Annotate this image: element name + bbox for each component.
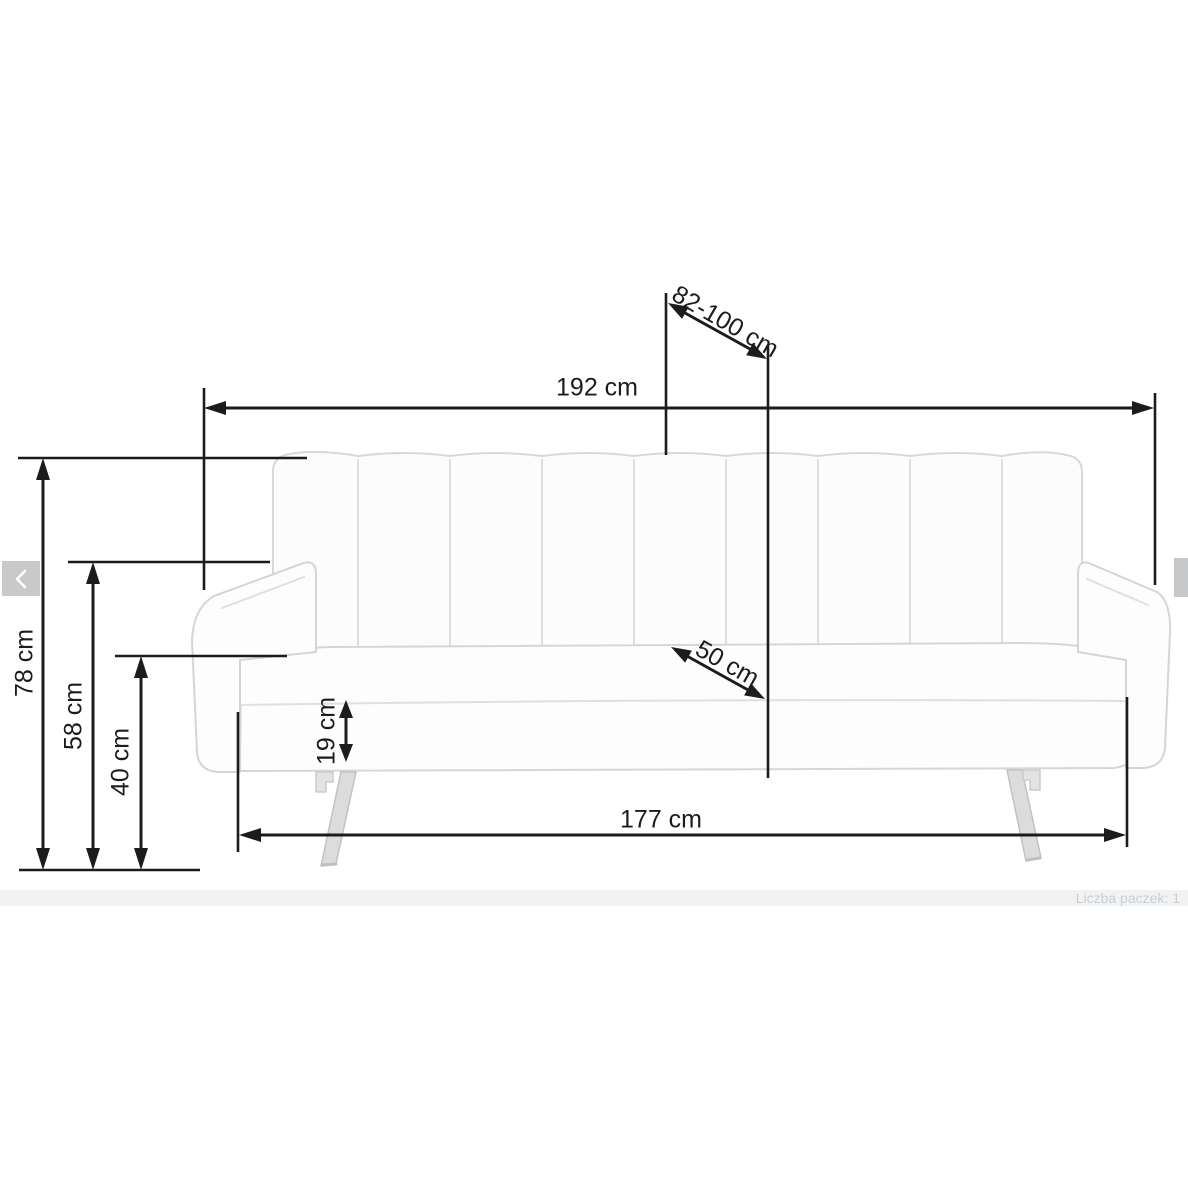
dim-seat-height (134, 656, 148, 870)
sofa-backrest (273, 452, 1082, 652)
dim-label-overall-height: 78 cm (13, 629, 38, 697)
dim-overall-width (204, 401, 1154, 415)
dim-label-frame-height: 19 cm (315, 697, 340, 765)
carousel-prev-button[interactable] (2, 561, 40, 596)
sofa-drawing (192, 452, 1170, 866)
dim-label-seat-height: 40 cm (109, 728, 134, 796)
dim-label-base-width: 177 cm (620, 808, 702, 833)
dim-armrest-height (86, 562, 100, 870)
dim-label-armrest-height: 58 cm (62, 682, 87, 750)
leg-right-foot (1027, 858, 1040, 860)
package-count-text: Liczba paczek: 1 (1076, 890, 1180, 906)
package-info-strip: Liczba paczek: 1 (0, 890, 1188, 906)
product-image-viewer: 192 cm 82-100 cm 78 cm 58 cm 40 cm 19 cm… (0, 0, 1188, 1188)
dim-label-overall-width: 192 cm (556, 376, 638, 401)
sofa-leg-bracket-left (316, 772, 333, 792)
leg-left-foot (322, 864, 336, 865)
carousel-next-button[interactable] (1174, 558, 1188, 597)
sofa-seat (216, 643, 1140, 771)
sofa-dimension-diagram (0, 0, 1188, 1188)
chevron-left-icon (14, 569, 28, 589)
